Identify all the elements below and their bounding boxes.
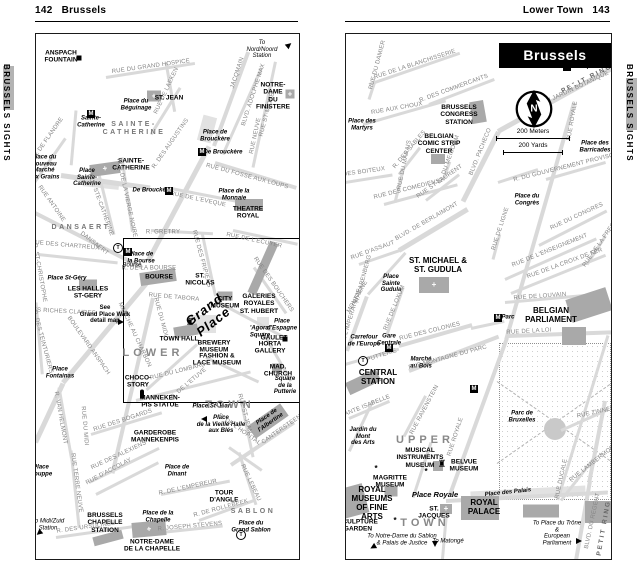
sight-building-icon: ♜ <box>186 318 195 328</box>
map-label: TOWN HALL <box>160 335 199 342</box>
map-brussels-center: Brussels Center N 200 Meters 200 Yards +… <box>345 33 612 560</box>
map-label: BELGIAN PARLIAMENT <box>525 307 577 325</box>
compass-icon: N <box>514 89 554 129</box>
map-label: R. GRETRY <box>146 230 180 237</box>
map-label: RUE DE LIGNE <box>491 207 511 252</box>
map-label: To Nord/Noord Station <box>244 40 281 60</box>
map-label: Place d'Espagne <box>267 318 297 331</box>
tram-stop-icon: T <box>113 243 123 253</box>
map-label: TOWN <box>400 517 449 529</box>
map-label: ROYAL PALACE <box>468 499 500 517</box>
map-label: LOWER <box>123 347 184 359</box>
map-label: SABLON <box>231 508 276 516</box>
map-label: Place du Béguinage <box>121 98 152 111</box>
building-block: + <box>419 277 449 293</box>
scale-yards-label: 200 Yards <box>488 142 578 149</box>
map-label: Parc <box>501 315 514 322</box>
map-label: Place des Martyrs <box>348 118 376 131</box>
header-rule-left <box>35 21 298 22</box>
map-label: ST. NICOLAS <box>185 273 214 288</box>
map-label: R. DU GOUVERNEMENT PROVISOIRE <box>513 150 612 184</box>
map-label: Place du Congrès <box>515 193 540 206</box>
map-label: PUTTERIE <box>366 348 398 364</box>
map-label: UPPER <box>396 434 454 446</box>
page-number-left: 142 <box>35 5 53 16</box>
map-label: CHOCO- STORY <box>125 375 151 390</box>
map-label: Parc de Bruxelles <box>508 410 535 423</box>
poi-square-icon <box>77 56 82 61</box>
direction-arrow-icon <box>576 538 582 544</box>
map-label: LES HALLES ST-GERY <box>68 286 108 301</box>
sidebar-tab-left: BRUSSELS SIGHTS <box>2 64 11 162</box>
building-block <box>523 505 559 518</box>
direction-arrow-icon <box>285 41 293 49</box>
map-label: R. DE LA BOURSE <box>122 266 177 273</box>
map-label: Jardin du Mont des Arts <box>349 427 376 447</box>
scale-meters-label: 200 Meters <box>488 128 578 135</box>
map-label: GALERIES ROYALES ST. HUBERT <box>240 293 278 315</box>
map-scale: 200 Meters 200 Yards <box>488 127 578 155</box>
map-label: ST. JEAN <box>155 94 184 101</box>
map-label: Place Fontainas <box>46 366 74 379</box>
stairs-icon: * <box>393 517 396 525</box>
map-label: BELVUE MUSEUM <box>450 459 479 474</box>
metro-icon: M <box>494 314 502 322</box>
map-label: Place des Barricades <box>579 140 610 153</box>
guidebook-spread: { "icons":{"metro":"M","tram":"T","rook"… <box>0 0 640 568</box>
map-label: ANSPACH FOUNTAIN <box>44 50 77 65</box>
map-label: Place de la Chapelle <box>142 510 173 523</box>
street-line <box>95 461 159 495</box>
map-label: RUE DU FOSSE AUX LOUPS <box>205 163 289 192</box>
map-label: Place de la Monnaie <box>218 188 249 201</box>
map-label: R. DES TEINTURIERS <box>35 310 54 375</box>
scale-yards-bar <box>503 150 563 155</box>
map-label: RUE DU MIDI <box>79 406 89 446</box>
map-label: Place Royale <box>412 491 458 499</box>
map-label: RUE RAVENSTEIN <box>409 384 441 436</box>
page-header-left: 142Brussels <box>35 5 115 16</box>
metro-icon: M <box>124 248 132 256</box>
page-header-right: Lower Town143 <box>345 5 610 16</box>
map-label: BRUSSELS CONGRESS STATION <box>440 104 477 126</box>
map-label: THEATRE ROYAL <box>233 206 263 221</box>
metro-icon: M <box>385 344 393 352</box>
metro-icon: M <box>165 187 173 195</box>
direction-arrow-icon <box>118 319 124 325</box>
map-label: Place de Dinant <box>165 464 189 477</box>
church-cross-icon: + <box>102 165 108 174</box>
map-label: RUE TERRE NEUVE <box>69 453 84 513</box>
map-label: Place de Brouckère <box>200 129 230 142</box>
map-label: R. ST-CHRISTOPHE <box>35 243 47 303</box>
map-label: Square de la Putterie <box>274 376 296 396</box>
metro-icon: M <box>198 148 206 156</box>
map-label: MUSICAL INSTRUMENTS MUSEUM <box>397 447 444 469</box>
tram-stop-icon: T <box>236 530 246 540</box>
building-block <box>431 154 445 164</box>
direction-arrow-icon <box>432 541 438 547</box>
map-label: De Brouckère <box>203 150 242 157</box>
map-label: SAINTE- CATHERINE <box>103 121 166 137</box>
sight-building-icon: ♜ <box>438 460 447 470</box>
map-label: ST. MICHAEL & ST. GUDULA <box>409 257 467 275</box>
map-label: MANNEKEN- PIS STATUE <box>140 395 180 410</box>
map-label: SCULPTURE GARDEN <box>345 519 378 534</box>
building-block <box>562 327 586 345</box>
header-rule-right <box>345 21 610 22</box>
map-label: Carrefour de l'Europe <box>348 334 380 347</box>
map-label: Place Rouppe <box>35 464 52 477</box>
tram-stop-icon: T <box>358 356 368 366</box>
map-label: NOTRE-DAME DU FINISTERE <box>256 81 290 110</box>
map-label: NOTRE-DAME DE LA CHAPELLE <box>124 539 180 554</box>
map-label: ROYAL MUSEUMS OF FINE ARTS <box>352 486 393 522</box>
direction-arrow-icon <box>201 416 207 422</box>
compass-rose: N <box>514 89 554 129</box>
sidebar-tab-right: BRUSSELS SIGHTS <box>625 64 634 162</box>
map-label: RUE DE LA BLANCHISSERIE <box>373 49 457 82</box>
page-number-right: 143 <box>592 5 610 16</box>
church-cross-icon: + <box>432 281 437 289</box>
map-label: CENTRAL STATION <box>359 369 397 387</box>
map-label: Place St-Géry <box>47 276 86 283</box>
scale-meters-bar <box>496 136 570 141</box>
compass-n-label: N <box>530 104 537 115</box>
map-label: BOURSE <box>145 273 173 280</box>
stairs-icon: * <box>424 468 427 476</box>
map-label: HORTA GALLERY <box>255 341 286 356</box>
page-title-left: Brussels <box>62 5 107 16</box>
map-label: TOWN <box>205 399 254 411</box>
page-title-right: Lower Town <box>523 5 584 16</box>
manneken-pis-statue-icon <box>140 390 144 399</box>
map-label: To Notre-Dame du Sablon & Palais de Just… <box>367 533 436 546</box>
metro-icon: M <box>87 110 95 118</box>
map-lower-town: ++++ANSPACH FOUNTAINTo Nord/Noord Statio… <box>35 33 300 560</box>
map-title: Brussels Center <box>499 43 611 68</box>
metro-icon: M <box>470 385 478 393</box>
poi-square-icon <box>283 337 288 342</box>
stairs-icon: * <box>374 465 377 473</box>
church-cross-icon: + <box>146 525 151 533</box>
